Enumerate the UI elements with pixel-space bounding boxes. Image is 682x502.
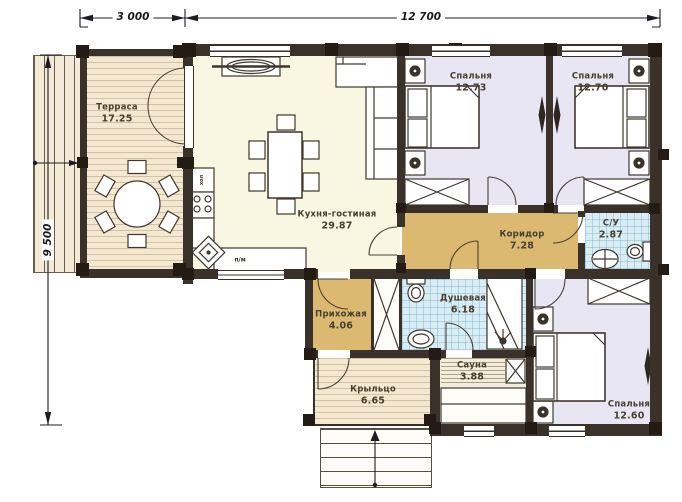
label-porch: Крыльцо6.65 (350, 384, 396, 407)
label-kitchen-living: Кухня-гостиная29.87 (298, 209, 377, 232)
dim-terrace-width: 3 000 (113, 11, 154, 23)
label-corridor: Коридор7.28 (499, 229, 544, 252)
label-bathroom: С/У2.87 (599, 218, 623, 241)
label-dishwasher: п/м (234, 257, 245, 264)
label-terrace: Терраса17.25 (96, 102, 138, 125)
label-bedroom-1: Спальня12.73 (450, 71, 492, 94)
label-sauna: Сауна3.88 (457, 360, 487, 383)
label-bedroom-2: Спальня12.70 (572, 71, 614, 94)
label-shower: Душевая6.18 (440, 293, 486, 316)
label-bedroom-3: Спальня12.60 (608, 399, 650, 422)
label-fridge: хол (199, 175, 205, 185)
dim-main-width: 12 700 (397, 11, 445, 23)
dim-total-depth: 9 500 (42, 220, 54, 261)
floor-plan: 3 000 12 700 9 500 Терраса17.25 Кухня-го… (0, 0, 682, 502)
label-hallway: Прихожая4.06 (315, 309, 367, 332)
